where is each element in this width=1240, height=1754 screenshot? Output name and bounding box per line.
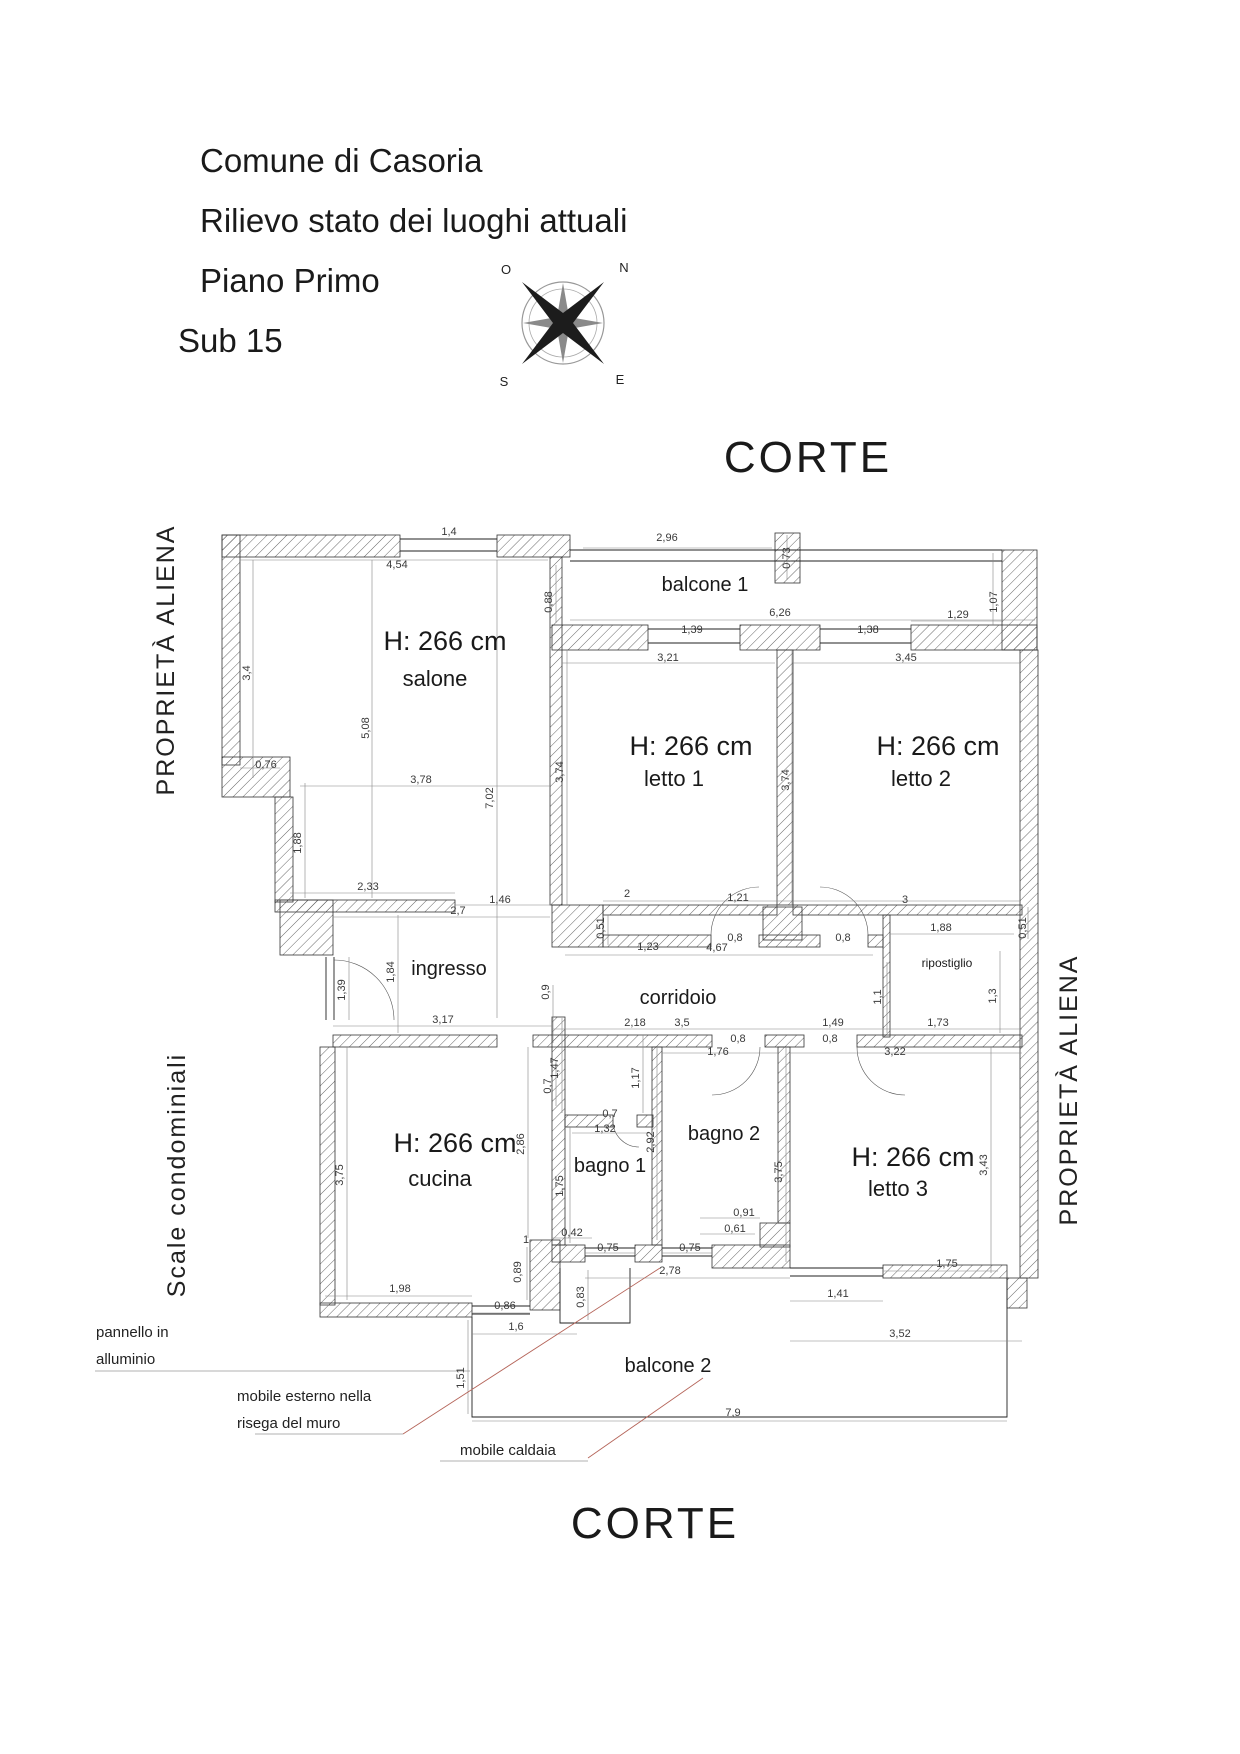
- dimension-label: 1,88: [930, 922, 951, 934]
- dimension-label: 1,23: [637, 941, 658, 953]
- dimension-label: 3,17: [432, 1014, 453, 1026]
- dimension-label: 0,76: [255, 759, 276, 771]
- dimension-label: 7,02: [484, 787, 496, 808]
- dimension-label: 5,08: [360, 717, 372, 738]
- dimension-label: 1,4: [441, 526, 456, 538]
- dimension-label: 0,75: [679, 1242, 700, 1254]
- dimension-label: 6,26: [769, 607, 790, 619]
- dimension-lines: [240, 535, 1035, 1421]
- dimension-label: 2,78: [659, 1265, 680, 1277]
- dimension-label: 1,46: [489, 894, 510, 906]
- dimension-label: 0,8: [727, 932, 742, 944]
- room-name-label: bagno 1: [574, 1155, 646, 1177]
- room-name-label: salone: [403, 666, 468, 691]
- dimension-label: 3,52: [889, 1328, 910, 1340]
- compass-north-label: N: [619, 260, 628, 275]
- room-height-label: H: 266 cm: [876, 731, 999, 761]
- dimension-label: 3: [902, 894, 908, 906]
- dimension-label: 2,18: [624, 1017, 645, 1029]
- room-height-label: H: 266 cm: [851, 1142, 974, 1172]
- dimension-label: 1,39: [336, 979, 348, 1000]
- room-height-label: H: 266 cm: [393, 1128, 516, 1158]
- dimension-label: 1,3: [987, 988, 999, 1003]
- dimension-label: 0,61: [724, 1223, 745, 1235]
- annotation-label: alluminio: [96, 1351, 155, 1368]
- room-height-label: H: 266 cm: [383, 626, 506, 656]
- dimension-label: 3,74: [554, 761, 566, 782]
- dimension-label: 3,21: [657, 652, 678, 664]
- dimension-label: 0,89: [512, 1261, 524, 1282]
- dimension-label: 2,92: [645, 1131, 657, 1152]
- compass-rose: N O E S: [500, 260, 629, 389]
- dimension-label: 1,32: [594, 1123, 615, 1135]
- room-name-label: ripostiglio: [922, 956, 973, 970]
- dimension-label: 1,41: [827, 1288, 848, 1300]
- dimension-label: 1,17: [630, 1067, 642, 1088]
- dimension-label: 0,73: [781, 547, 793, 568]
- dimension-label: 1,29: [947, 609, 968, 621]
- dimension-label: 1,49: [822, 1017, 843, 1029]
- door-arcs: [334, 887, 905, 1147]
- dimension-label: 2,33: [357, 881, 378, 893]
- dimension-label: 0,88: [543, 591, 555, 612]
- title-line-1: Comune di Casoria: [200, 142, 483, 179]
- annotation-label: risega del muro: [237, 1415, 340, 1432]
- dimension-label: 0,91: [733, 1207, 754, 1219]
- dimension-label: 0,42: [561, 1227, 582, 1239]
- dimension-label: 1,73: [927, 1017, 948, 1029]
- dimension-label: 0,8: [822, 1033, 837, 1045]
- dimension-label: 1,75: [936, 1258, 957, 1270]
- room-name-label: cucina: [408, 1166, 472, 1191]
- dimension-label: 3,74: [780, 769, 792, 790]
- boundary-label-left-upper: PROPRIETÀ ALIENA: [151, 525, 180, 796]
- dimension-label: 1,84: [385, 961, 397, 982]
- dimension-label: 3,75: [773, 1161, 785, 1182]
- dimension-label: 4,67: [706, 942, 727, 954]
- dimension-label: 0,83: [575, 1286, 587, 1307]
- dimension-label: 2,96: [656, 532, 677, 544]
- dimension-label: 3,4: [241, 665, 253, 680]
- corte-label-bottom: CORTE: [571, 1499, 739, 1548]
- dimension-label: 0,86: [494, 1300, 515, 1312]
- compass-west-label: O: [501, 262, 511, 277]
- dimension-label: 1,76: [707, 1046, 728, 1058]
- dimension-label: 1,07: [988, 591, 1000, 612]
- room-name-label: letto 3: [868, 1176, 928, 1201]
- compass-south-label: S: [500, 374, 509, 389]
- dimension-label: 1: [523, 1234, 529, 1246]
- annotation-label: mobile caldaia: [460, 1442, 557, 1459]
- boundary-label-left-lower: Scale condominiali: [163, 1053, 191, 1297]
- boundary-label-right: PROPRIETÀ ALIENA: [1054, 955, 1083, 1226]
- dimension-label: 1,88: [292, 832, 304, 853]
- drawing-sheet: Comune di Casoria Rilievo stato dei luog…: [0, 0, 1240, 1754]
- dimension-label: 7,9: [725, 1407, 740, 1419]
- dimension-label: 1,21: [727, 892, 748, 904]
- room-name-label: letto 1: [644, 766, 704, 791]
- title-line-2: Rilievo stato dei luoghi attuali: [200, 202, 627, 239]
- dimension-label: 1,6: [508, 1321, 523, 1333]
- dimension-label: 2,86: [515, 1133, 527, 1154]
- title-line-3: Piano Primo: [200, 262, 380, 299]
- dimension-label: 0,9: [540, 984, 552, 999]
- dimension-label: 2,7: [450, 905, 465, 917]
- floor-plan-svg: Comune di Casoria Rilievo stato dei luog…: [0, 0, 1240, 1754]
- dimension-label: 3,22: [884, 1046, 905, 1058]
- compass-east-label: E: [616, 372, 625, 387]
- dimension-label: 0,8: [730, 1033, 745, 1045]
- dimension-label: 1,75: [554, 1175, 566, 1196]
- dimension-label: 1,51: [455, 1367, 467, 1388]
- title-line-4: Sub 15: [178, 322, 283, 359]
- corte-label-top: CORTE: [724, 433, 892, 482]
- dimension-label: 4,54: [386, 559, 407, 571]
- dimension-label: 0,75: [597, 1242, 618, 1254]
- room-name-label: balcone 2: [625, 1355, 712, 1377]
- dimension-label: 0,51: [1017, 917, 1029, 938]
- room-name-label: balcone 1: [662, 574, 749, 596]
- annotation-label: mobile esterno nella: [237, 1388, 372, 1405]
- dimension-label: 3,43: [978, 1154, 990, 1175]
- room-height-label: H: 266 cm: [629, 731, 752, 761]
- dimension-label: 3,5: [674, 1017, 689, 1029]
- dimension-label: 3,45: [895, 652, 916, 664]
- dimension-label: 3,75: [334, 1164, 346, 1185]
- dimension-label: 1,47: [549, 1057, 561, 1078]
- dimension-label: 1,98: [389, 1283, 410, 1295]
- dimension-label: 0,51: [595, 917, 607, 938]
- dimension-label: 0,7: [602, 1108, 617, 1120]
- room-name-label: bagno 2: [688, 1123, 760, 1145]
- dimension-label: 1,1: [872, 989, 884, 1004]
- dimension-label: 3,78: [410, 774, 431, 786]
- dimension-label: 0,8: [835, 932, 850, 944]
- dimension-label: 0,7: [542, 1078, 554, 1093]
- room-name-label: corridoio: [640, 987, 717, 1009]
- dimension-label: 2: [624, 888, 630, 900]
- dimension-label: 1,39: [681, 624, 702, 636]
- room-name-label: ingresso: [411, 958, 487, 980]
- room-name-label: letto 2: [891, 766, 951, 791]
- annotation-label: pannello in: [96, 1324, 169, 1341]
- dimension-label: 1,38: [857, 624, 878, 636]
